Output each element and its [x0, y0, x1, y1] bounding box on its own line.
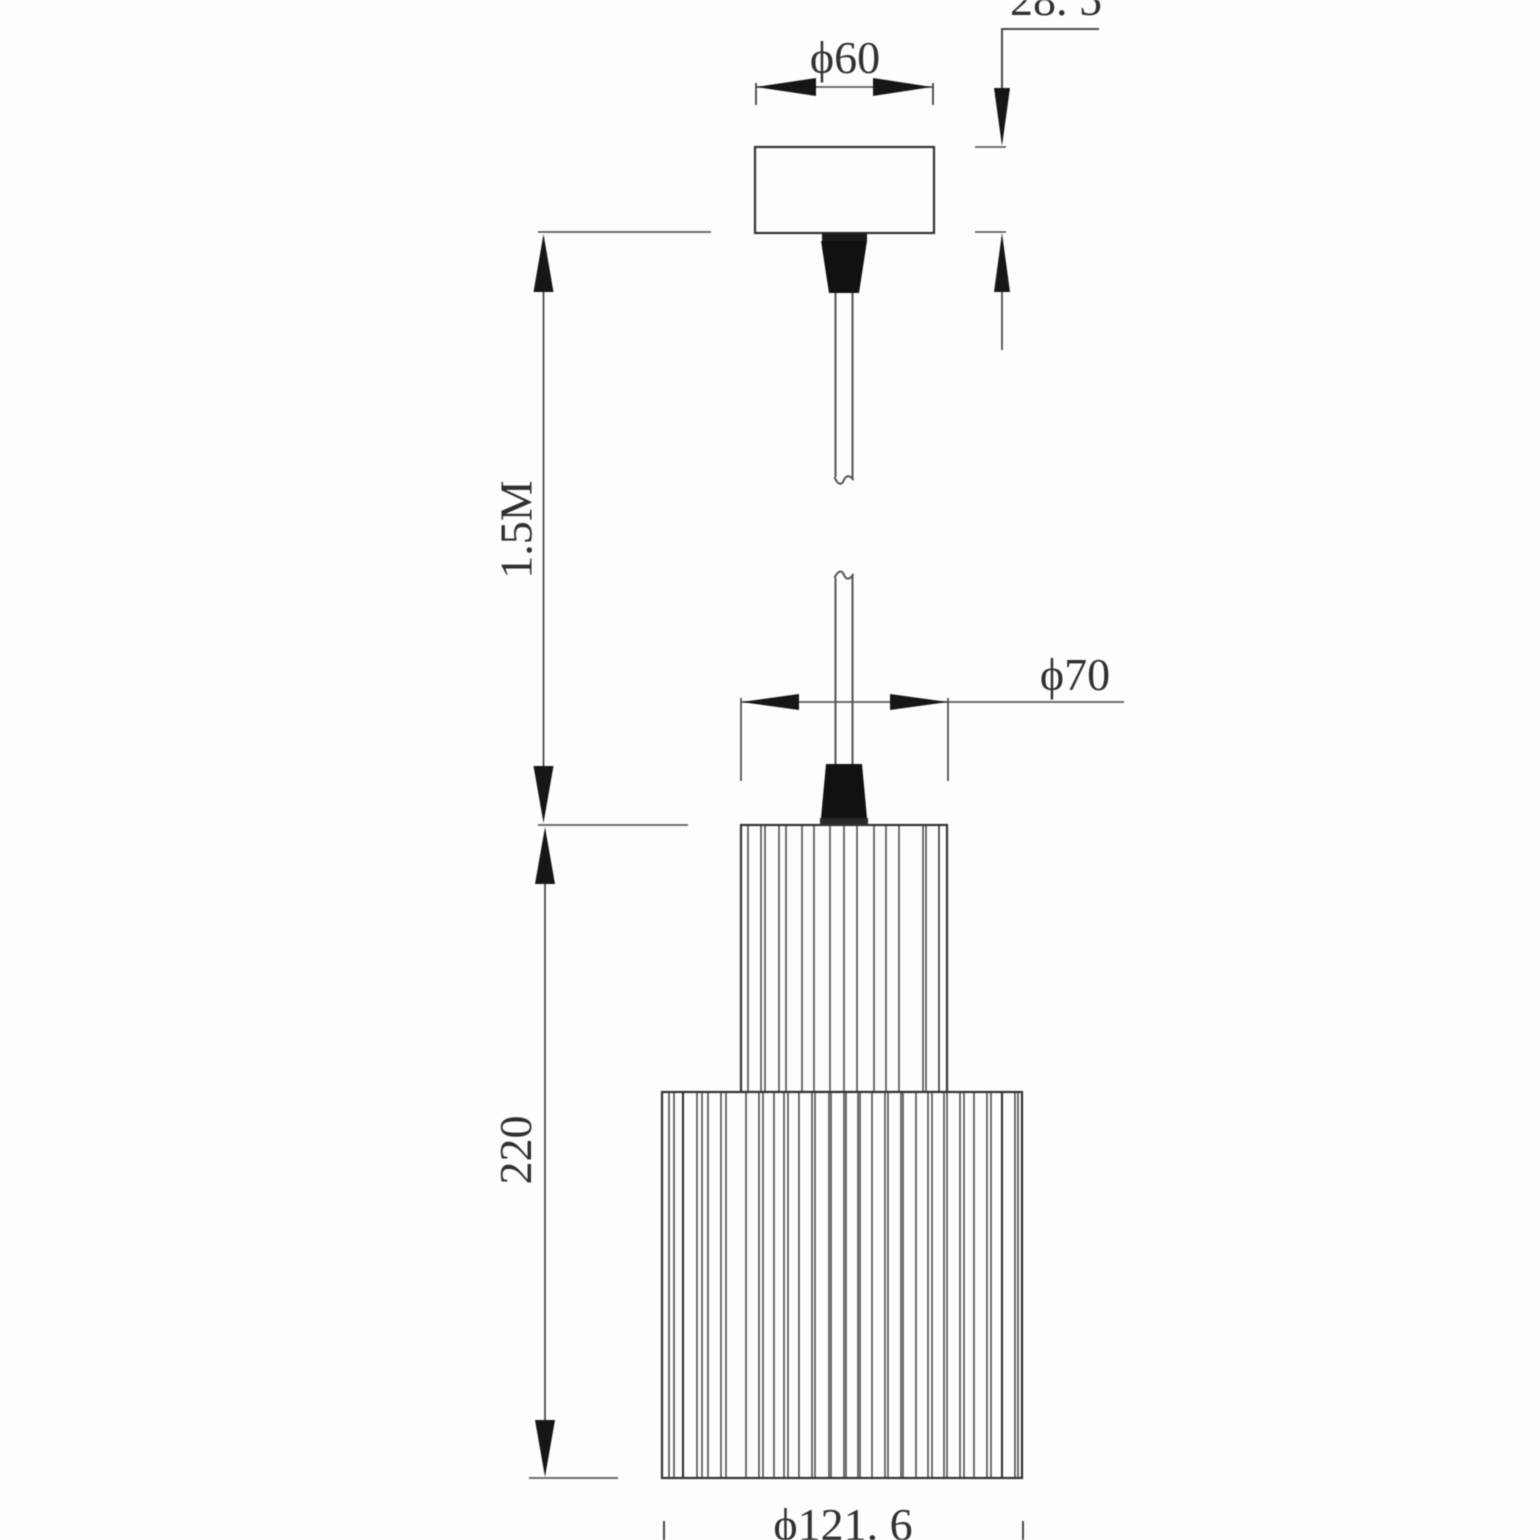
svg-text:ϕ70: ϕ70	[1040, 649, 1110, 700]
svg-text:220: 220	[490, 1116, 541, 1185]
svg-text:ϕ60: ϕ60	[810, 32, 880, 83]
svg-text:28. 5: 28. 5	[1010, 0, 1102, 25]
svg-text:1.5M: 1.5M	[491, 480, 542, 578]
svg-text:ϕ121. 6: ϕ121. 6	[773, 1499, 912, 1540]
